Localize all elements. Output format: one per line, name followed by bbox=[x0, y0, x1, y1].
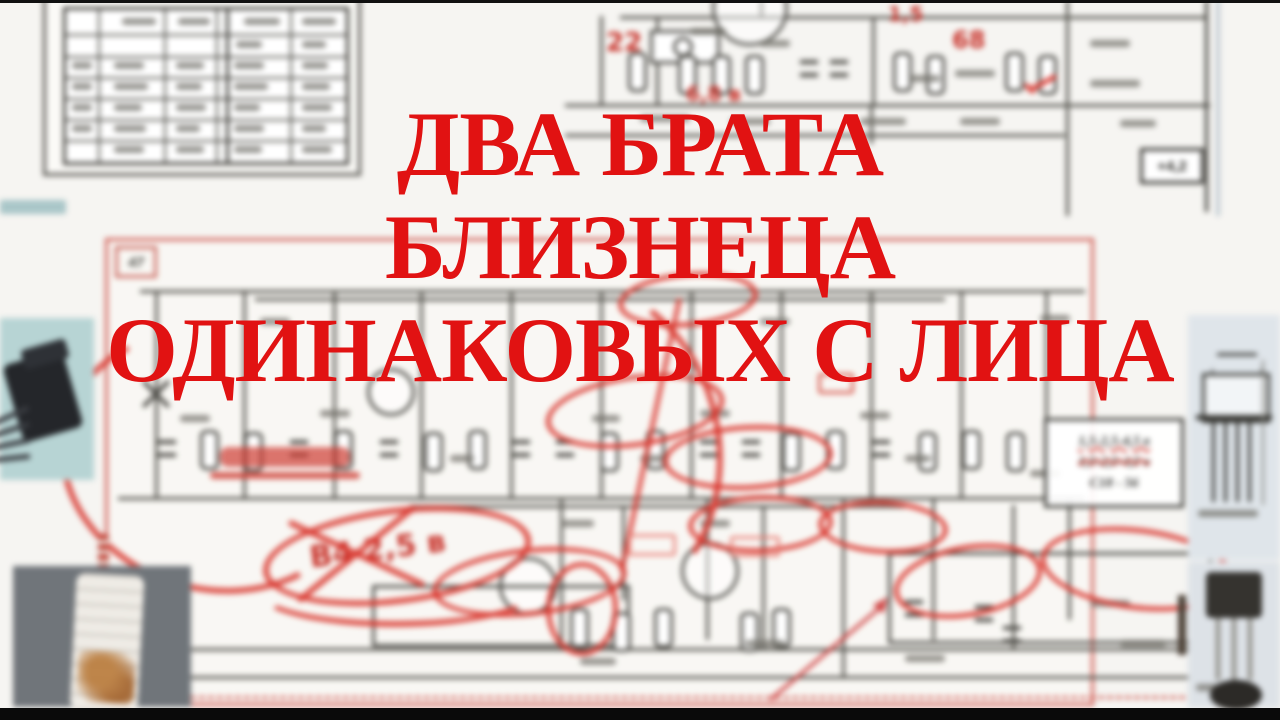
bottom-edge-bar bbox=[0, 708, 1280, 720]
title-line-1: ДВА БРАТА bbox=[0, 98, 1280, 190]
thumbnail-canvas: 22 6,8 в 1,5 68 +4,2 47 bbox=[0, 0, 1280, 720]
title-line-3: ОДИНАКОВЫХ С ЛИЦА bbox=[0, 304, 1280, 396]
top-edge-bar bbox=[0, 0, 1280, 3]
title-overlay: ДВА БРАТА БЛИЗНЕЦА ОДИНАКОВЫХ С ЛИЦА bbox=[0, 0, 1280, 720]
title-line-2: БЛИЗНЕЦА bbox=[0, 201, 1280, 293]
